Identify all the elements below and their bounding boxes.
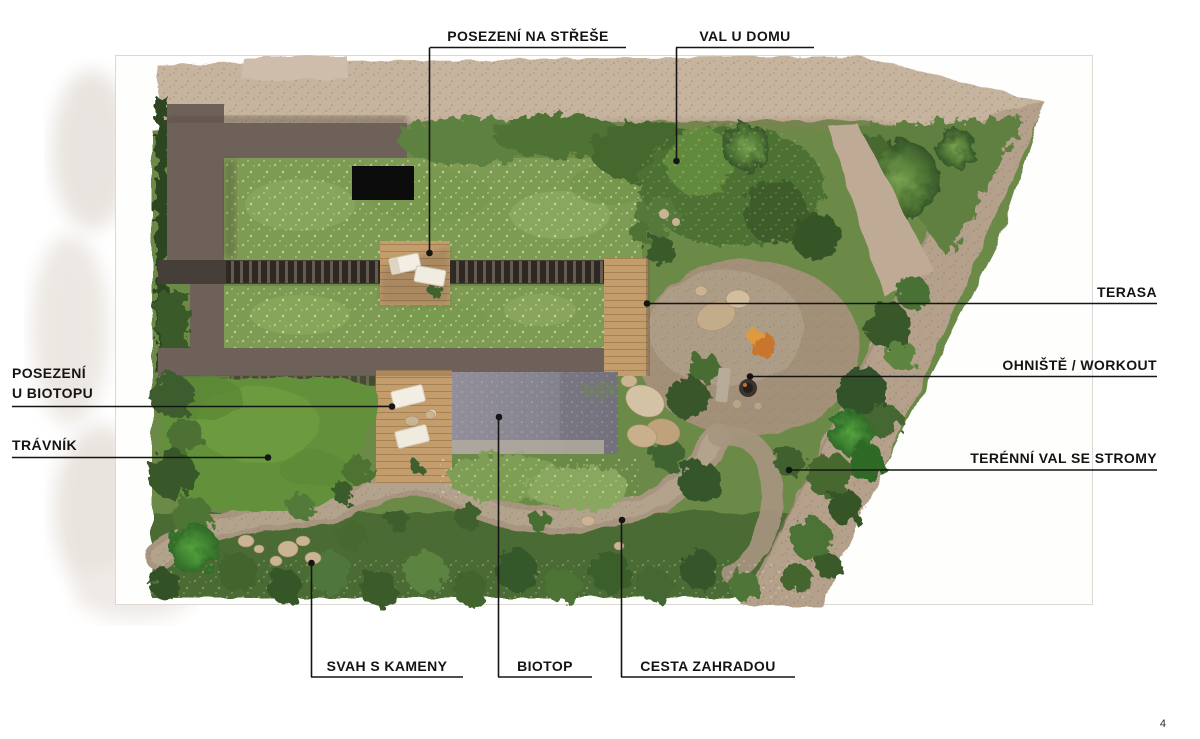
label-firepit-workout: OHNIŠTĚ / WORKOUT — [1002, 357, 1157, 374]
label-lawn: TRÁVNÍK — [12, 437, 77, 454]
rooftop-deck — [380, 241, 450, 305]
page-number: 4 — [1160, 718, 1166, 730]
courtyard-opening — [352, 166, 414, 200]
label-biotope-seating-line2: U BIOTOPU — [12, 383, 93, 403]
label-berm-by-house: VAL U DOMU — [676, 28, 814, 45]
label-biotope-seating-line1: POSEZENÍ — [12, 363, 93, 383]
label-roof-seating: POSEZENÍ NA STŘEŠE — [430, 28, 626, 45]
label-terrain-berm-with-trees: TERÉNNÍ VAL SE STROMY — [970, 450, 1157, 467]
label-biotope-seating: POSEZENÍ U BIOTOPU — [12, 363, 93, 403]
east-deck-strip — [604, 258, 648, 376]
label-garden-path: CESTA ZAHRADOU — [621, 658, 795, 675]
label-terrace: TERASA — [1097, 284, 1157, 301]
label-biotope: BIOTOP — [498, 658, 592, 675]
plan-page: POSEZENÍ NA STŘEŠE VAL U DOMU TERASA OHN… — [0, 0, 1200, 739]
label-slope-with-stones: SVAH S KAMENY — [311, 658, 463, 675]
